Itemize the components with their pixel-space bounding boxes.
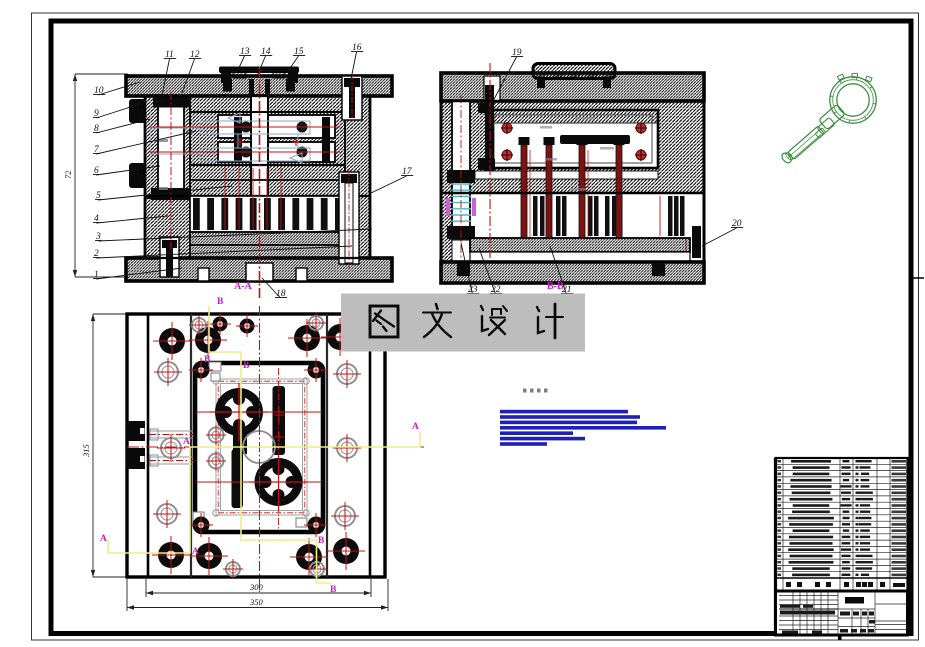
svg-text:A: A (412, 422, 419, 432)
svg-text:B-B: B-B (547, 281, 564, 292)
svg-text:A: A (100, 534, 107, 544)
svg-text:315: 315 (81, 444, 91, 458)
svg-text:B: B (217, 297, 224, 307)
svg-text:A-A: A-A (234, 281, 253, 292)
svg-text:72: 72 (63, 170, 73, 179)
svg-text:B: B (204, 355, 211, 365)
svg-text:B: B (243, 361, 250, 371)
svg-text:A: A (183, 437, 190, 447)
svg-text:B: B (318, 536, 325, 546)
svg-text:A: A (192, 547, 199, 557)
svg-text:350: 350 (249, 597, 264, 607)
svg-text:B: B (330, 585, 337, 595)
svg-text:300: 300 (249, 582, 264, 592)
